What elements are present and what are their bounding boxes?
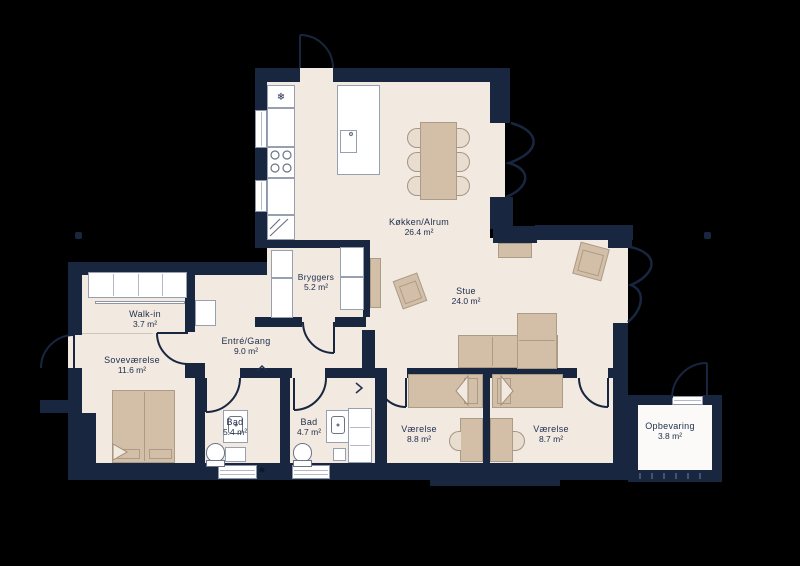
room-area: 8.8 m² bbox=[401, 434, 437, 444]
room-label-stue: Stue 24.0 m² bbox=[452, 286, 481, 306]
room-area: 9.0 m² bbox=[221, 346, 270, 356]
wall-segment bbox=[608, 225, 632, 248]
dining-table bbox=[420, 122, 457, 200]
sink bbox=[340, 130, 357, 153]
floor-plan: ❄ bbox=[0, 0, 800, 566]
plan-marker-dot bbox=[75, 232, 82, 239]
room-name: Bad bbox=[223, 417, 247, 427]
freezer: ❄ bbox=[267, 85, 295, 108]
wall-segment bbox=[628, 395, 638, 480]
room-label-koekken-alrum: Køkken/Alrum 26.4 m² bbox=[389, 217, 449, 237]
fireplace-block bbox=[493, 226, 537, 243]
kitchen-counter bbox=[267, 108, 295, 147]
laundry-column bbox=[348, 408, 372, 463]
utility-appliance bbox=[340, 247, 364, 277]
bathroom-cabinet bbox=[225, 447, 246, 462]
wall-segment bbox=[255, 68, 267, 247]
wall-segment bbox=[240, 368, 292, 378]
utility-appliance bbox=[271, 278, 293, 318]
room-label-entre-gang: Entré/Gang 9.0 m² bbox=[221, 336, 270, 356]
wall-segment bbox=[613, 323, 628, 470]
room-name: Opbevaring bbox=[645, 421, 695, 431]
wall-segment bbox=[712, 395, 722, 480]
window bbox=[292, 465, 330, 479]
floor-dining-door-opening bbox=[490, 123, 505, 197]
window bbox=[218, 465, 257, 479]
wall-segment bbox=[333, 68, 497, 82]
toilet-tank bbox=[206, 460, 225, 467]
room-label-opbevaring: Opbevaring 3.8 m² bbox=[645, 421, 695, 441]
sideboard bbox=[370, 258, 381, 308]
room-name: Køkken/Alrum bbox=[389, 217, 449, 227]
dining-chair bbox=[407, 176, 420, 196]
wall-segment bbox=[82, 413, 96, 463]
window bbox=[255, 180, 267, 212]
bathroom-cabinet bbox=[333, 448, 346, 461]
room-label-bad-1: Bad 5.4 m² bbox=[223, 417, 247, 437]
room-area: 8.7 m² bbox=[533, 434, 569, 444]
wall-segment bbox=[362, 330, 375, 378]
room-label-sovevaerelse: Soveværelse 11.6 m² bbox=[104, 355, 160, 375]
dining-chair bbox=[407, 152, 420, 172]
room-area: 24.0 m² bbox=[452, 296, 481, 306]
single-bed bbox=[408, 374, 483, 408]
single-bed bbox=[492, 374, 563, 408]
wall-segment bbox=[375, 368, 387, 463]
double-bed bbox=[112, 390, 175, 463]
toilet-tank bbox=[293, 460, 312, 467]
desk bbox=[490, 418, 513, 462]
wall-segment bbox=[68, 368, 82, 468]
room-name: Værelse bbox=[533, 424, 569, 434]
wardrobe-rail bbox=[95, 301, 185, 304]
room-name: Bryggers bbox=[298, 272, 334, 282]
room-area: 26.4 m² bbox=[389, 227, 449, 237]
plan-marker-dot bbox=[704, 232, 711, 239]
room-name: Entré/Gang bbox=[221, 336, 270, 346]
room-label-vaerelse-2: Værelse 8.7 m² bbox=[533, 424, 569, 444]
wall-segment bbox=[255, 317, 302, 327]
door-threshold bbox=[672, 396, 703, 405]
wall-segment bbox=[608, 368, 613, 378]
room-label-bryggers: Bryggers 5.2 m² bbox=[298, 272, 334, 292]
kitchen-counter bbox=[267, 178, 295, 215]
wall-segment bbox=[628, 470, 722, 482]
wall-segment bbox=[490, 68, 510, 123]
wall-segment bbox=[68, 262, 82, 335]
sofa-chaise bbox=[517, 313, 557, 369]
room-name: Stue bbox=[452, 286, 481, 296]
freezer-icon: ❄ bbox=[268, 86, 294, 109]
refrigerator bbox=[267, 215, 295, 240]
sink bbox=[331, 416, 345, 434]
dining-chair bbox=[407, 128, 420, 148]
floor-bedroom-door-opening bbox=[185, 332, 195, 363]
stove bbox=[267, 147, 295, 178]
wall-segment bbox=[280, 378, 290, 463]
room-area: 3.7 m² bbox=[129, 319, 161, 329]
wall-segment bbox=[195, 368, 205, 463]
utility-appliance bbox=[340, 277, 364, 310]
wall-segment bbox=[430, 477, 560, 486]
hall-wardrobe bbox=[195, 300, 216, 326]
room-area: 5.4 m² bbox=[223, 427, 247, 437]
room-divider-line bbox=[82, 333, 153, 334]
wall-segment bbox=[483, 378, 490, 463]
fireplace-hearth bbox=[498, 243, 532, 258]
room-label-walkin: Walk-in 3.7 m² bbox=[129, 309, 161, 329]
room-name: Værelse bbox=[401, 424, 437, 434]
wall-segment bbox=[628, 395, 674, 405]
floor-livingroom-door-opening bbox=[613, 248, 628, 323]
room-label-vaerelse-1: Værelse 8.8 m² bbox=[401, 424, 437, 444]
window bbox=[255, 110, 267, 148]
room-area: 3.8 m² bbox=[645, 431, 695, 441]
walkin-wardrobe bbox=[88, 272, 187, 298]
room-area: 5.2 m² bbox=[298, 282, 334, 292]
bathroom-vanity bbox=[326, 410, 350, 443]
room-name: Bad bbox=[297, 417, 321, 427]
wall-segment bbox=[335, 317, 366, 327]
room-name: Soveværelse bbox=[104, 355, 160, 365]
room-label-bad-2: Bad 4.7 m² bbox=[297, 417, 321, 437]
floor-exterior-door-opening bbox=[68, 335, 82, 368]
room-name: Walk-in bbox=[129, 309, 161, 319]
wall-segment bbox=[40, 400, 68, 413]
wall-segment bbox=[363, 248, 370, 317]
floor-entrance-opening bbox=[300, 68, 333, 82]
desk bbox=[460, 418, 483, 462]
utility-appliance bbox=[271, 250, 293, 278]
room-area: 11.6 m² bbox=[104, 365, 160, 375]
room-area: 4.7 m² bbox=[297, 427, 321, 437]
wall-segment bbox=[325, 368, 362, 378]
